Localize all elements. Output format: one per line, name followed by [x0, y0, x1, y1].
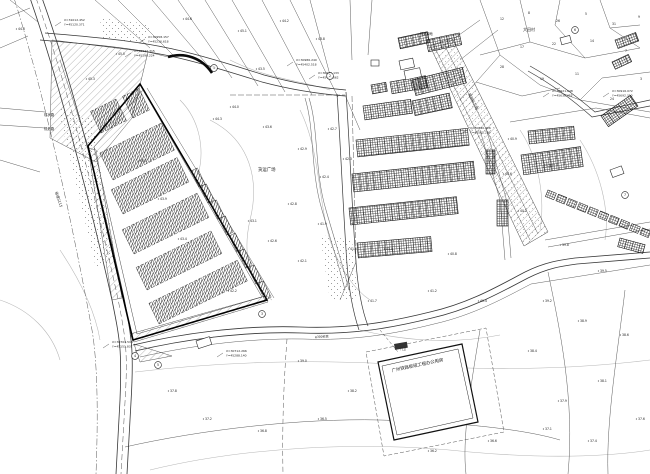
office-building	[366, 328, 504, 456]
spot-elevation-mark	[258, 430, 259, 431]
coordinate-callout-x: X=30942.315	[134, 49, 155, 53]
parcel-number: 11	[575, 72, 579, 76]
spot-elevation: 38.4	[530, 349, 537, 353]
site-plan-canvas: 货运广场现状路规划路省道S115大田村上边村规划绿地规划纵三路门卫φ300砼管广…	[0, 0, 650, 474]
building-block	[486, 150, 495, 174]
spot-elevation-mark	[528, 350, 529, 351]
spot-elevation-mark	[316, 38, 317, 39]
spot-elevation: 42.3	[345, 157, 352, 161]
spot-elevation-mark	[448, 253, 449, 254]
spot-elevation: 38.6	[622, 333, 629, 337]
building-bar	[257, 281, 271, 300]
parcel-number: 19	[540, 77, 544, 81]
village-house	[598, 211, 609, 221]
village-house	[545, 190, 556, 200]
spot-elevation: 43.4	[180, 237, 187, 241]
spot-elevation-mark	[543, 428, 544, 429]
village-house	[566, 198, 577, 208]
spot-elevation-mark	[508, 138, 509, 139]
spot-elevation: 43.8	[318, 37, 325, 41]
spot-elevation: 42.7	[330, 127, 337, 131]
spot-elevation-mark	[116, 53, 117, 54]
spot-elevation-mark	[478, 300, 479, 301]
village-house	[587, 207, 598, 217]
coordinate-callout-x: X=30921.648	[552, 89, 573, 93]
building-block	[412, 93, 452, 116]
spot-elevation: 40.9	[510, 137, 517, 141]
building-block	[363, 99, 412, 120]
spot-elevation-mark	[503, 173, 504, 174]
spot-elevation: 43.1	[250, 219, 257, 223]
leader-line	[287, 62, 293, 66]
coordinate-callout-y: Y=45402.518	[296, 62, 317, 66]
parcel-number: 12	[500, 17, 504, 21]
spot-elevation: 37.8	[170, 389, 177, 393]
spot-elevation: 37.6	[638, 417, 645, 421]
spot-elevation: 41.7	[370, 299, 377, 303]
area-label: 省道S115	[54, 191, 64, 208]
parcel-number: 9	[638, 15, 640, 19]
spot-elevation-mark	[318, 418, 319, 419]
parcel-number: 7	[625, 49, 627, 53]
spot-elevation: 40.8	[450, 252, 457, 256]
small-building	[399, 58, 415, 70]
spot-elevation: 39.8	[562, 243, 569, 247]
area-label: 上边村	[543, 162, 555, 168]
spot-elevation-mark	[320, 176, 321, 177]
spot-elevation-mark	[636, 418, 637, 419]
spot-elevation: 41.2	[430, 289, 437, 293]
spot-elevation-mark	[348, 248, 349, 249]
cad-viewport: 货运广场现状路规划路省道S115大田村上边村规划绿地规划纵三路门卫φ300砼管广…	[0, 0, 650, 474]
spot-elevation: 38.9	[580, 319, 587, 323]
spot-elevation: 44.0	[232, 105, 239, 109]
parcel-number: 26	[556, 19, 560, 23]
spot-elevation-mark	[238, 30, 239, 31]
spot-elevation: 41.0	[386, 247, 393, 251]
spot-elevation: 36.5	[320, 417, 327, 421]
spot-elevation: 44.5	[140, 159, 147, 163]
building-block	[612, 54, 632, 69]
marker-number: 6	[574, 28, 576, 32]
leader-line	[603, 93, 609, 97]
coordinate-callout-y: Y=45692.310	[612, 93, 633, 97]
spot-elevation-mark	[384, 248, 385, 249]
building-block	[357, 237, 432, 258]
building-block	[356, 128, 469, 157]
spot-elevation-mark	[428, 450, 429, 451]
spot-elevation: 36.8	[260, 429, 267, 433]
spot-elevation: 39.0	[300, 359, 307, 363]
building-block	[615, 32, 639, 48]
area-label: 规划绿地	[420, 31, 434, 36]
spot-elevation-mark	[518, 210, 519, 211]
building-block	[521, 147, 583, 175]
small-building	[610, 166, 624, 178]
area-label: 货运广场	[258, 166, 276, 173]
coordinate-callout-y: Y=45288.140	[226, 353, 247, 357]
spot-elevation-mark	[178, 238, 179, 239]
small-building	[560, 35, 571, 44]
leader-line	[309, 75, 315, 79]
spot-elevation-mark	[298, 148, 299, 149]
spot-elevation: 40.4	[480, 299, 487, 303]
village-house	[608, 215, 619, 225]
spot-elevation: 39.5	[600, 269, 607, 273]
spot-elevation-mark	[598, 270, 599, 271]
spot-elevation-mark	[16, 28, 17, 29]
spot-elevation-mark	[288, 203, 289, 204]
coordinate-callout-x: X=30986.240	[296, 58, 317, 62]
village-house	[577, 203, 588, 213]
coordinate-callout-x: X=30958.157	[148, 35, 169, 39]
parcel-number: 3	[640, 77, 642, 81]
spot-elevation: 43.5	[258, 67, 265, 71]
parcel-number: 24	[610, 97, 614, 101]
spot-elevation: 42.6	[270, 239, 277, 243]
parcel-number: 17	[520, 45, 524, 49]
village-house	[619, 219, 630, 229]
spot-elevation: 43.9	[160, 197, 167, 201]
building-block	[349, 197, 458, 225]
spot-elevation: 44.6	[185, 17, 192, 21]
spot-elevation: 45.0	[118, 52, 125, 56]
spot-elevation-mark	[558, 400, 559, 401]
building-block	[618, 238, 645, 253]
spot-elevation: 42.4	[322, 175, 329, 179]
spot-elevation-mark	[158, 198, 159, 199]
area-label: 规划路	[44, 126, 55, 131]
spot-elevation-mark	[256, 68, 257, 69]
spot-elevation-mark	[428, 290, 429, 291]
area-label: 大田村	[523, 26, 535, 32]
small-building	[196, 337, 212, 349]
spot-elevation-mark	[620, 334, 621, 335]
spot-elevation: 37.1	[545, 427, 552, 431]
spot-elevation-mark	[230, 106, 231, 107]
marker-number: 2	[329, 74, 331, 78]
building-bar	[200, 184, 214, 203]
marker-number: 1	[213, 66, 215, 70]
building-row	[136, 231, 222, 290]
spot-elevation-mark	[560, 244, 561, 245]
coordinate-callout-x: X=30890.426	[470, 126, 491, 130]
spot-elevation: 36.6	[490, 439, 497, 443]
coordinate-callout-x: X=30712.266	[226, 349, 247, 353]
spot-elevation: 40.6	[505, 172, 512, 176]
spot-elevation: 42.9	[300, 147, 307, 151]
spot-elevation: 45.3	[88, 77, 95, 81]
spot-elevation-mark	[228, 290, 229, 291]
coordinate-callout-y: Y=45638.455	[552, 93, 573, 97]
parcel-number: 14	[590, 39, 594, 43]
leader-line	[217, 353, 223, 357]
spot-elevation-mark	[263, 126, 264, 127]
building-block	[497, 200, 508, 226]
coordinate-callout-x: X=30704.518	[112, 340, 133, 344]
spot-elevation-mark	[368, 300, 369, 301]
coordinate-callout-y: Y=45236.618	[148, 39, 169, 43]
parcel-number: 5	[585, 12, 587, 16]
spot-elevation-mark	[248, 220, 249, 221]
spot-elevation: 39.2	[545, 299, 552, 303]
building-bar	[229, 233, 243, 252]
spot-elevation-mark	[168, 390, 169, 391]
village-buildings	[486, 32, 650, 253]
parcel-number: 31	[612, 22, 616, 26]
spot-elevation-mark	[298, 260, 299, 261]
spot-elevation-mark	[268, 240, 269, 241]
coordinate-callout-y: Y=45198.224	[134, 53, 155, 57]
area-label: φ300砼管	[315, 333, 329, 339]
spot-elevation: 37.2	[205, 417, 212, 421]
spot-elevation: 37.9	[560, 399, 567, 403]
spot-elevation: 45.1	[240, 29, 247, 33]
parcel-number: 28	[500, 65, 504, 69]
spot-elevation: 38.1	[600, 379, 607, 383]
spot-elevation: 41.9	[320, 222, 327, 226]
spot-elevation: 44.8	[18, 27, 25, 31]
retaining-wall-arc	[168, 55, 212, 73]
spot-elevation-mark	[488, 440, 489, 441]
coordinate-callout-y: Y=45561.209	[470, 130, 491, 134]
spot-elevation: 44.2	[282, 19, 289, 23]
spot-elevation: 37.4	[590, 439, 597, 443]
area-label: 门卫	[400, 346, 406, 351]
building-block	[528, 126, 575, 144]
spot-elevation: 42.1	[300, 259, 307, 263]
spot-elevation-mark	[578, 320, 579, 321]
leader-line	[103, 344, 109, 348]
spot-elevation: 38.2	[350, 389, 357, 393]
spot-elevation-mark	[328, 128, 329, 129]
marker-number: 3	[261, 312, 263, 316]
building-bar	[210, 200, 224, 219]
marker-number: 5	[157, 363, 159, 367]
spot-elevation-mark	[86, 78, 87, 79]
spot-elevation: 40.2	[520, 209, 527, 213]
spot-elevation-mark	[280, 20, 281, 21]
spot-elevation-mark	[203, 418, 204, 419]
building-block	[601, 95, 638, 126]
parcel-number: 8	[528, 11, 530, 15]
parcel-number: 22	[552, 42, 556, 46]
spot-elevation-mark	[588, 440, 589, 441]
spot-elevation: 42.2	[230, 289, 237, 293]
coordinate-callout-y: Y=45151.837	[112, 344, 133, 348]
spot-elevation-mark	[598, 380, 599, 381]
spot-elevation-mark	[343, 158, 344, 159]
marker-number: 7	[624, 193, 626, 197]
spot-elevation: 44.3	[215, 117, 222, 121]
leader-line	[55, 22, 61, 26]
spot-elevation-mark	[298, 360, 299, 361]
spot-elevation: 41.5	[350, 247, 357, 251]
spot-elevation-mark	[183, 18, 184, 19]
coordinate-callout-x: X=31012.452	[64, 18, 85, 22]
village-house	[556, 194, 567, 204]
spot-elevation-mark	[138, 160, 139, 161]
coordinate-callout-y: Y=45120.371	[64, 22, 85, 26]
building-block	[352, 161, 475, 192]
spot-elevation: 43.6	[265, 125, 272, 129]
marker-number: 4	[134, 354, 136, 358]
spot-elevation: 42.8	[290, 202, 297, 206]
spot-elevation-mark	[213, 118, 214, 119]
spot-elevation-mark	[318, 223, 319, 224]
spot-elevation-mark	[543, 300, 544, 301]
leader-line	[543, 93, 549, 97]
building-block	[371, 82, 387, 93]
coordinate-callout-x: X=30916.072	[612, 89, 633, 93]
spot-elevation: 36.2	[430, 449, 437, 453]
small-building	[371, 60, 379, 66]
spot-elevation-mark	[348, 390, 349, 391]
area-label: 现状路	[44, 112, 55, 117]
